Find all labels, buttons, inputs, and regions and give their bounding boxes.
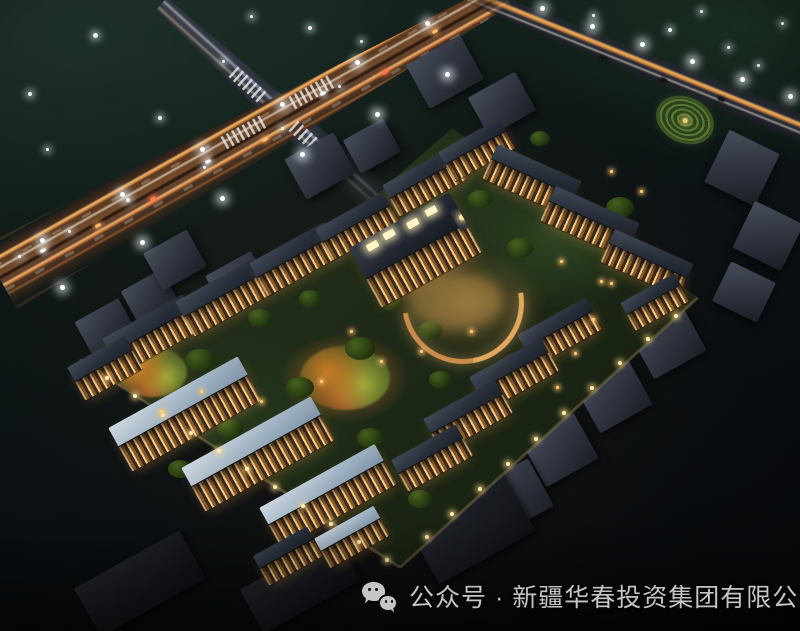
perimeter-light [478, 487, 482, 491]
star-light [360, 40, 363, 43]
wechat-bubble-small [380, 596, 396, 610]
perimeter-light [385, 558, 389, 562]
tree [468, 190, 492, 208]
perimeter-light [425, 535, 429, 539]
street-light [280, 102, 285, 107]
street-light [425, 21, 430, 26]
perimeter-light [161, 413, 165, 417]
garden-lamp [592, 318, 595, 321]
street-light [200, 147, 205, 152]
perimeter-light [618, 361, 622, 365]
street-light [355, 60, 360, 65]
street-light [788, 94, 793, 99]
star-light [46, 148, 49, 151]
star-light [781, 22, 784, 25]
star-light [668, 28, 672, 32]
perimeter-light [217, 449, 221, 453]
star-light [68, 230, 71, 233]
perimeter-light [273, 485, 277, 489]
context-building [74, 530, 206, 631]
perimeter-light [133, 394, 137, 398]
perimeter-light [105, 376, 109, 380]
star-light [757, 64, 760, 67]
street-light [140, 240, 145, 245]
garden-lamp [610, 170, 613, 173]
street-light [220, 196, 225, 201]
perimeter-light [674, 314, 678, 318]
street-light [590, 24, 595, 29]
star-light [158, 116, 162, 120]
street-light [40, 238, 45, 243]
garden-lamp [600, 280, 603, 283]
perimeter-light [590, 386, 594, 390]
flower-garden [300, 346, 390, 410]
star-light [281, 127, 284, 130]
star-light [727, 46, 730, 49]
tree [345, 337, 375, 360]
caption-bar: 公众号 · 新疆华春投资集团有限公司 [362, 578, 800, 614]
star-light [18, 255, 21, 258]
star-light [592, 14, 595, 17]
garden-lamp [320, 380, 323, 383]
garden-lamp [420, 350, 423, 353]
tree [299, 290, 321, 307]
context-building [732, 201, 800, 271]
context-building [704, 130, 780, 207]
garden-lamp [160, 410, 163, 413]
garden-lamp [610, 282, 613, 285]
star-light [250, 15, 253, 18]
wechat-eye [368, 588, 371, 591]
perimeter-light [329, 522, 333, 526]
star-light [126, 198, 130, 202]
street-light [690, 59, 695, 64]
tree [286, 377, 314, 398]
garden-lamp [200, 390, 203, 393]
perimeter-light [357, 540, 361, 544]
street-light [300, 152, 305, 157]
street-light [740, 77, 745, 82]
garden-lamp [556, 386, 559, 389]
garden-lamp [260, 400, 263, 403]
wechat-eye [385, 600, 388, 603]
garden-lamp [640, 190, 643, 193]
wechat-icon [362, 582, 398, 611]
star-light [338, 85, 341, 88]
street-light [540, 6, 545, 11]
context-building [712, 261, 776, 322]
tree [185, 349, 215, 372]
wechat-eye [391, 600, 394, 603]
street-light [640, 42, 645, 47]
tree [408, 490, 432, 508]
perimeter-light [245, 467, 249, 471]
garden-lamp [560, 260, 563, 263]
tree [507, 238, 533, 258]
street-light [445, 72, 450, 77]
garden-lamp [574, 352, 577, 355]
star-light [203, 166, 206, 169]
garden-lamp [380, 360, 383, 363]
star-light [28, 92, 32, 96]
star-light [700, 10, 703, 13]
caption-text: 公众号 · 新疆华春投资集团有限公司 [409, 578, 800, 614]
street-light [60, 285, 65, 290]
perimeter-light [301, 504, 305, 508]
perimeter-light [506, 462, 510, 466]
tree [530, 131, 550, 146]
star-light [93, 33, 98, 38]
perimeter-light [450, 512, 454, 516]
street-light [120, 192, 125, 197]
perimeter-light [189, 431, 193, 435]
star-light [308, 26, 312, 30]
tree [429, 371, 451, 388]
aerial-night-rendering: 公众号 · 新疆华春投资集团有限公司 [0, 0, 800, 631]
garden-lamp [350, 330, 353, 333]
perimeter-light [646, 337, 650, 341]
street-light [375, 112, 380, 117]
star-light [222, 60, 225, 63]
garden-lamp [470, 330, 473, 333]
perimeter-light [562, 411, 566, 415]
perimeter-light [534, 437, 538, 441]
wechat-eye [375, 588, 378, 591]
tree [248, 309, 272, 327]
